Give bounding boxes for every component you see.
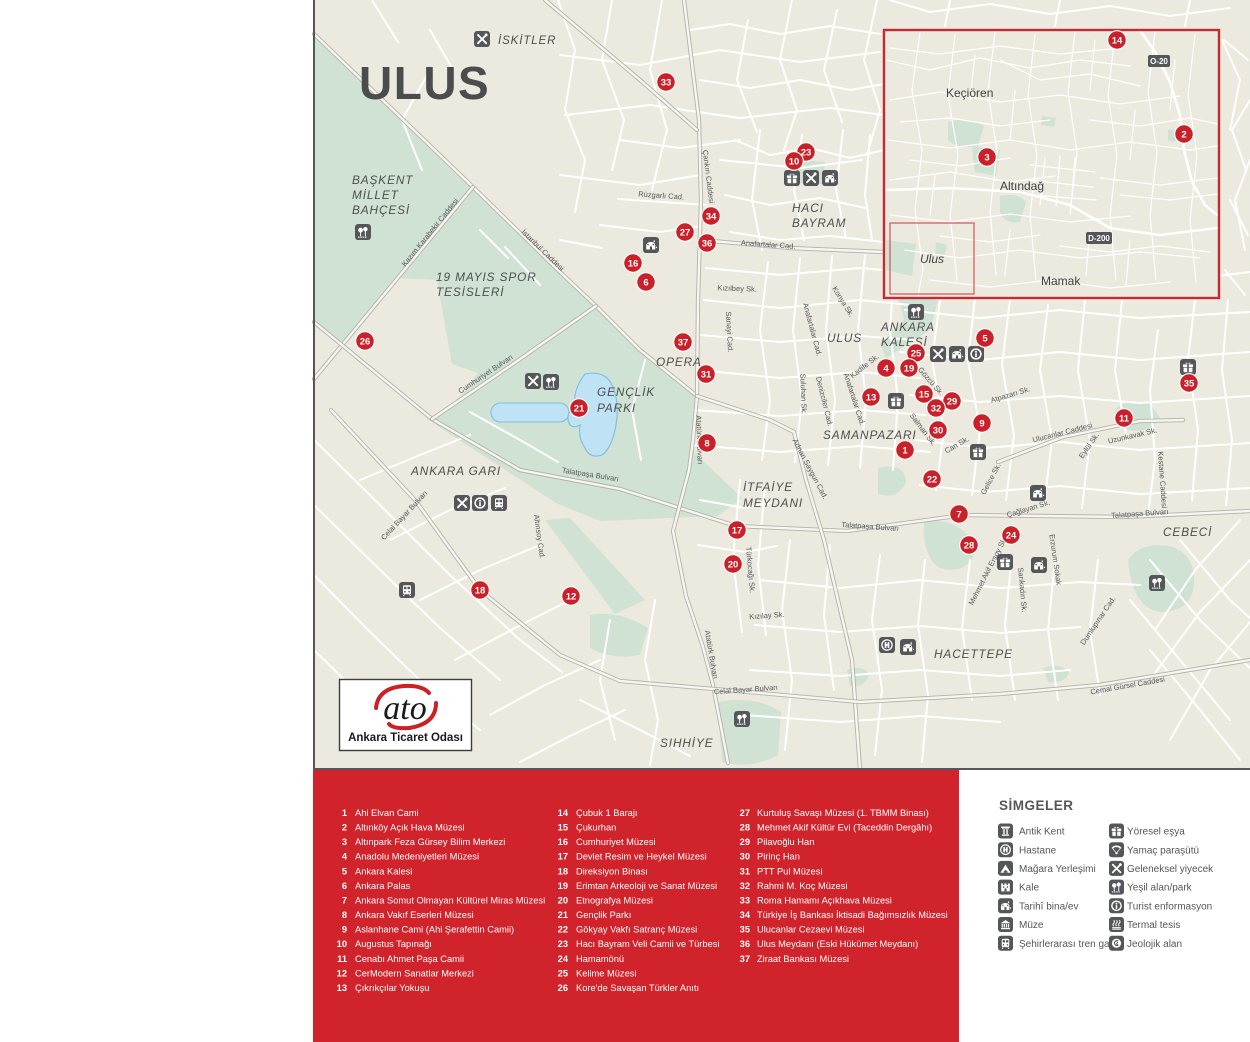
svg-text:Yöresel eşya: Yöresel eşya	[1127, 827, 1185, 838]
svg-text:14: 14	[1112, 35, 1123, 46]
svg-text:31: 31	[701, 369, 712, 380]
svg-text:MEYDANI: MEYDANI	[743, 496, 803, 510]
svg-text:BAŞKENT: BAŞKENT	[352, 173, 413, 187]
svg-text:11: 11	[1119, 413, 1130, 424]
svg-text:Etnografya Müzesi: Etnografya Müzesi	[576, 896, 653, 906]
svg-text:30: 30	[933, 425, 944, 436]
svg-text:SAMANPAZARI: SAMANPAZARI	[823, 428, 917, 442]
svg-text:Jeolojik alan: Jeolojik alan	[1127, 939, 1182, 950]
svg-text:37: 37	[678, 337, 689, 348]
svg-text:36: 36	[702, 238, 713, 249]
svg-text:HACI: HACI	[792, 201, 824, 215]
svg-text:7: 7	[342, 896, 347, 906]
svg-text:ULUS: ULUS	[827, 331, 862, 345]
svg-text:Mağara Yerleşimi: Mağara Yerleşimi	[1019, 864, 1096, 875]
svg-text:4: 4	[342, 852, 348, 862]
svg-text:15: 15	[919, 389, 930, 400]
svg-text:Türkiye İş Bankası İktisadi Ba: Türkiye İş Bankası İktisadi Bağımsızlık …	[757, 910, 948, 920]
svg-text:Ankara Ticaret Odası: Ankara Ticaret Odası	[348, 732, 463, 744]
svg-text:PTT Pul Müzesi: PTT Pul Müzesi	[757, 866, 822, 876]
svg-text:30: 30	[740, 852, 750, 862]
svg-text:13: 13	[337, 983, 347, 993]
svg-text:34: 34	[740, 910, 751, 920]
svg-text:Altınpark Feza Gürsey Bilim Me: Altınpark Feza Gürsey Bilim Merkezi	[355, 837, 505, 847]
svg-text:27: 27	[680, 227, 691, 238]
svg-text:36: 36	[740, 939, 750, 949]
svg-text:D-200: D-200	[1088, 234, 1110, 243]
svg-text:6: 6	[643, 277, 648, 288]
svg-text:Aslanhane Cami (Ahi Şerafettin: Aslanhane Cami (Ahi Şerafettin Camii)	[355, 925, 514, 935]
svg-text:34: 34	[706, 211, 717, 222]
svg-text:33: 33	[740, 896, 750, 906]
svg-text:Termal tesis: Termal tesis	[1127, 920, 1180, 931]
svg-text:Ankara Somut Olmayan Kültürel: Ankara Somut Olmayan Kültürel Miras Müze…	[355, 896, 545, 906]
svg-text:22: 22	[558, 925, 568, 935]
svg-text:26: 26	[558, 983, 568, 993]
svg-text:Ankara Vakıf Eserleri Müzesi: Ankara Vakıf Eserleri Müzesi	[355, 910, 474, 920]
svg-text:CEBECİ: CEBECİ	[1163, 525, 1212, 539]
svg-text:12: 12	[566, 591, 577, 602]
svg-text:32: 32	[931, 403, 942, 414]
svg-text:20: 20	[728, 559, 739, 570]
svg-text:Müze: Müze	[1019, 920, 1044, 931]
svg-text:26: 26	[360, 336, 371, 347]
svg-text:TESİSLERİ: TESİSLERİ	[436, 285, 504, 299]
svg-text:5: 5	[342, 866, 347, 876]
svg-text:Ulus Meydanı (Eski Hükümet Mey: Ulus Meydanı (Eski Hükümet Meydanı)	[757, 939, 918, 949]
svg-text:Altınköy Açık Hava Müzesi: Altınköy Açık Hava Müzesi	[355, 823, 465, 833]
svg-text:Ulus: Ulus	[920, 252, 944, 266]
svg-text:Suluhan Sk.: Suluhan Sk.	[798, 374, 808, 415]
svg-text:BAHÇESİ: BAHÇESİ	[352, 203, 410, 217]
svg-text:27: 27	[740, 808, 750, 818]
svg-text:29: 29	[740, 837, 750, 847]
svg-text:Çukurhan: Çukurhan	[576, 823, 616, 833]
svg-text:Roma Hamamı Açıkhava Müzesi: Roma Hamamı Açıkhava Müzesi	[757, 896, 892, 906]
svg-text:11: 11	[337, 954, 347, 964]
svg-text:Hamamönü: Hamamönü	[576, 954, 624, 964]
svg-text:22: 22	[927, 474, 938, 485]
svg-text:23: 23	[558, 939, 568, 949]
svg-text:16: 16	[628, 258, 639, 269]
svg-text:Yeşil alan/park: Yeşil alan/park	[1127, 883, 1193, 894]
svg-text:12: 12	[337, 968, 347, 978]
svg-text:29: 29	[947, 396, 958, 407]
svg-text:Şehirlerarası tren garı: Şehirlerarası tren garı	[1019, 939, 1116, 950]
svg-text:18: 18	[558, 866, 568, 876]
svg-text:17: 17	[732, 525, 743, 536]
svg-text:ANKARA: ANKARA	[880, 320, 935, 334]
svg-text:Çubuk 1 Barajı: Çubuk 1 Barajı	[576, 808, 638, 818]
svg-text:24: 24	[558, 954, 569, 964]
svg-text:35: 35	[1184, 378, 1195, 389]
svg-text:GENÇLİK: GENÇLİK	[597, 385, 655, 399]
svg-text:Ulucanlar Cezaevi Müzesi: Ulucanlar Cezaevi Müzesi	[757, 925, 864, 935]
svg-text:Pilavoğlu Han: Pilavoğlu Han	[757, 837, 814, 847]
svg-text:Kelime Müzesi: Kelime Müzesi	[576, 968, 636, 978]
svg-text:13: 13	[866, 392, 877, 403]
svg-text:BAYRAM: BAYRAM	[792, 216, 846, 230]
svg-text:Cenabı Ahmet Paşa Camii: Cenabı Ahmet Paşa Camii	[355, 954, 464, 964]
svg-text:ULUS: ULUS	[359, 57, 490, 109]
svg-text:Kurtuluş Savaşı Müzesi (1. TBM: Kurtuluş Savaşı Müzesi (1. TBMM Binası)	[757, 808, 929, 818]
svg-text:10: 10	[789, 156, 800, 167]
svg-text:Kızılbey Sk.: Kızılbey Sk.	[717, 283, 757, 293]
svg-text:21: 21	[574, 403, 585, 414]
svg-text:Erimtan Arkeoloji ve Sanat Müz: Erimtan Arkeoloji ve Sanat Müzesi	[576, 881, 717, 891]
svg-text:Ankara Kalesi: Ankara Kalesi	[355, 866, 412, 876]
svg-text:3: 3	[984, 152, 989, 163]
svg-text:Gökyay Vakfı Satranç Müzesi: Gökyay Vakfı Satranç Müzesi	[576, 925, 697, 935]
svg-text:8: 8	[342, 910, 347, 920]
svg-text:Gençlik Parkı: Gençlik Parkı	[576, 910, 631, 920]
svg-text:Mehmet Akif Kültür Evi (Tacedd: Mehmet Akif Kültür Evi (Taceddin Dergâhı…	[757, 823, 932, 833]
svg-text:9: 9	[342, 925, 347, 935]
svg-text:SİMGELER: SİMGELER	[999, 798, 1074, 813]
svg-text:Ziraat Bankası Müzesi: Ziraat Bankası Müzesi	[757, 954, 849, 964]
svg-text:Hacı Bayram Veli Camii ve Türb: Hacı Bayram Veli Camii ve Türbesi	[576, 939, 719, 949]
svg-text:33: 33	[661, 77, 672, 88]
svg-text:Çıkrıkçılar Yokuşu: Çıkrıkçılar Yokuşu	[355, 983, 429, 993]
svg-text:18: 18	[475, 585, 486, 596]
svg-text:Geleneksel yiyecek: Geleneksel yiyecek	[1127, 864, 1214, 875]
svg-text:21: 21	[558, 910, 568, 920]
svg-text:O-20: O-20	[1150, 57, 1168, 66]
svg-text:17: 17	[558, 852, 568, 862]
svg-text:OPERA: OPERA	[656, 355, 702, 369]
svg-text:28: 28	[740, 823, 750, 833]
svg-text:Antik Kent: Antik Kent	[1019, 827, 1065, 838]
svg-text:MİLLET: MİLLET	[352, 188, 399, 202]
svg-text:Altındağ: Altındağ	[1000, 179, 1044, 193]
svg-text:8: 8	[704, 438, 709, 449]
svg-text:Anadolu Medeniyetleri Müzesi: Anadolu Medeniyetleri Müzesi	[355, 852, 479, 862]
svg-text:5: 5	[982, 333, 988, 344]
svg-text:28: 28	[964, 540, 975, 551]
svg-text:Kale: Kale	[1019, 883, 1039, 894]
svg-text:24: 24	[1006, 530, 1017, 541]
svg-text:16: 16	[558, 837, 568, 847]
svg-text:Direksiyon Binası: Direksiyon Binası	[576, 866, 648, 876]
svg-text:1: 1	[902, 445, 908, 456]
svg-text:ANKARA GARI: ANKARA GARI	[410, 464, 501, 478]
svg-text:Kore'de Savaşan Türkler Anıtı: Kore'de Savaşan Türkler Anıtı	[576, 983, 699, 993]
svg-text:PARKI: PARKI	[597, 401, 636, 415]
svg-text:1: 1	[342, 808, 347, 818]
svg-text:Pirinç Han: Pirinç Han	[757, 852, 800, 862]
svg-text:35: 35	[740, 925, 750, 935]
svg-text:31: 31	[740, 866, 750, 876]
svg-text:Cumhuriyet Müzesi: Cumhuriyet Müzesi	[576, 837, 656, 847]
svg-text:Devlet Resim ve Heykel Müzesi: Devlet Resim ve Heykel Müzesi	[576, 852, 707, 862]
svg-text:İSKİTLER: İSKİTLER	[498, 35, 556, 47]
svg-text:Ankara Palas: Ankara Palas	[355, 881, 411, 891]
svg-text:6: 6	[342, 881, 347, 891]
svg-text:Tarihî bina/ev: Tarihî bina/ev	[1019, 901, 1078, 912]
svg-text:25: 25	[911, 348, 922, 359]
svg-text:Hastane: Hastane	[1019, 845, 1057, 856]
svg-text:4: 4	[883, 363, 889, 374]
svg-text:37: 37	[740, 954, 750, 964]
svg-text:25: 25	[558, 968, 568, 978]
svg-text:14: 14	[558, 808, 569, 818]
svg-text:ato: ato	[383, 690, 426, 727]
svg-text:2: 2	[1181, 129, 1186, 140]
svg-text:Mamak: Mamak	[1041, 274, 1081, 288]
svg-text:Ahi Elvan Cami: Ahi Elvan Cami	[355, 808, 419, 818]
svg-text:HACETTEPE: HACETTEPE	[934, 647, 1013, 661]
svg-text:Turist enformasyon: Turist enformasyon	[1127, 901, 1212, 912]
svg-text:Augustus Tapınağı: Augustus Tapınağı	[355, 939, 432, 949]
svg-text:20: 20	[558, 896, 568, 906]
svg-text:İTFAİYE: İTFAİYE	[743, 480, 793, 494]
svg-text:19: 19	[558, 881, 568, 891]
svg-text:19: 19	[904, 363, 915, 374]
svg-text:CerModern Sanatlar Merkezi: CerModern Sanatlar Merkezi	[355, 968, 474, 978]
svg-text:10: 10	[337, 939, 347, 949]
svg-text:2: 2	[342, 823, 347, 833]
svg-text:SIHHİYE: SIHHİYE	[660, 736, 714, 750]
svg-text:Yamaç paraşütü: Yamaç paraşütü	[1127, 845, 1199, 856]
svg-text:32: 32	[740, 881, 750, 891]
svg-text:9: 9	[979, 418, 984, 429]
svg-text:7: 7	[956, 509, 961, 520]
svg-text:Rahmi M. Koç Müzesi: Rahmi M. Koç Müzesi	[757, 881, 847, 891]
svg-text:19 MAYIS SPOR: 19 MAYIS SPOR	[436, 270, 537, 284]
svg-text:3: 3	[342, 837, 347, 847]
svg-text:15: 15	[558, 823, 568, 833]
svg-text:Keçiören: Keçiören	[946, 86, 993, 100]
